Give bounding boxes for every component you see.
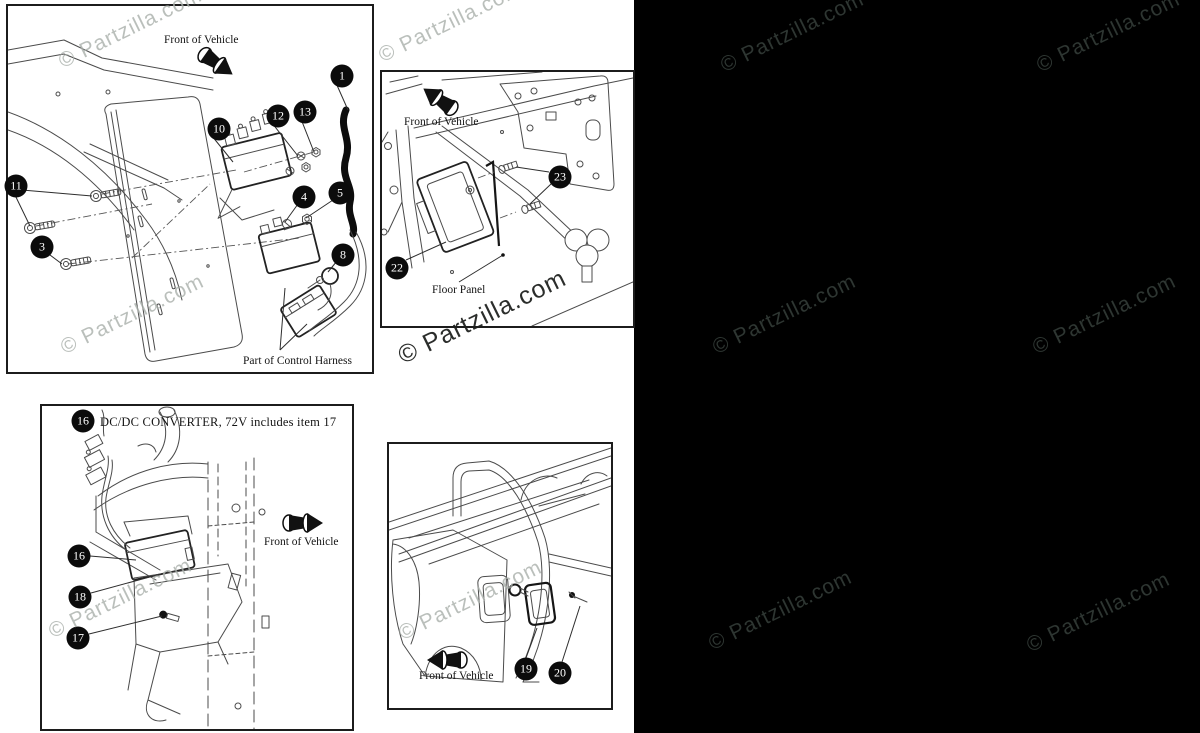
callout-16-header: 16 <box>72 410 95 433</box>
callout-19: 19 <box>515 658 538 681</box>
parts-diagram-page: { "watermark": { "text": "© Partzilla.co… <box>0 0 1200 733</box>
callout-5: 5 <box>329 182 352 205</box>
callout-13: 13 <box>294 101 317 124</box>
callout-3: 3 <box>31 236 54 259</box>
callout-4: 4 <box>293 186 316 209</box>
watermark: © Partzilla.com <box>375 0 525 66</box>
callout-17: 17 <box>67 627 90 650</box>
rear-body-drawing <box>389 444 611 708</box>
floor-panel-drawing <box>382 72 633 326</box>
callout-10: 10 <box>208 118 231 141</box>
callout-16: 16 <box>68 545 91 568</box>
dcdc-converter-drawing <box>42 406 352 729</box>
floor-panel-label: Floor Panel <box>432 284 485 296</box>
callout-20: 20 <box>549 662 572 685</box>
panel-dcdc-converter: DC/DC CONVERTER, 72V includes item 17 Fr… <box>40 404 354 731</box>
callout-23: 23 <box>549 166 572 189</box>
callout-11: 11 <box>5 175 28 198</box>
callout-8: 8 <box>332 244 355 267</box>
front-of-vehicle-label: Front of Vehicle <box>419 670 494 682</box>
part-of-control-harness-label: Part of Control Harness <box>243 355 352 367</box>
dcdc-converter-header: DC/DC CONVERTER, 72V includes item 17 <box>100 415 336 430</box>
front-of-vehicle-label: Front of Vehicle <box>264 536 339 548</box>
panel-fender-harness: Front of Vehicle Part of Control Harness… <box>6 4 374 374</box>
callout-12: 12 <box>267 105 290 128</box>
front-of-vehicle-arrow-icon <box>427 643 469 672</box>
front-of-vehicle-label: Front of Vehicle <box>404 116 479 128</box>
callout-18: 18 <box>69 586 92 609</box>
black-background-region <box>634 0 1200 733</box>
panel-rear-body: Front of Vehicle 19 20 <box>387 442 613 710</box>
callout-1: 1 <box>331 65 354 88</box>
panel-floor: Front of Vehicle Floor Panel 23 22 <box>380 70 635 328</box>
callout-22: 22 <box>386 257 409 280</box>
